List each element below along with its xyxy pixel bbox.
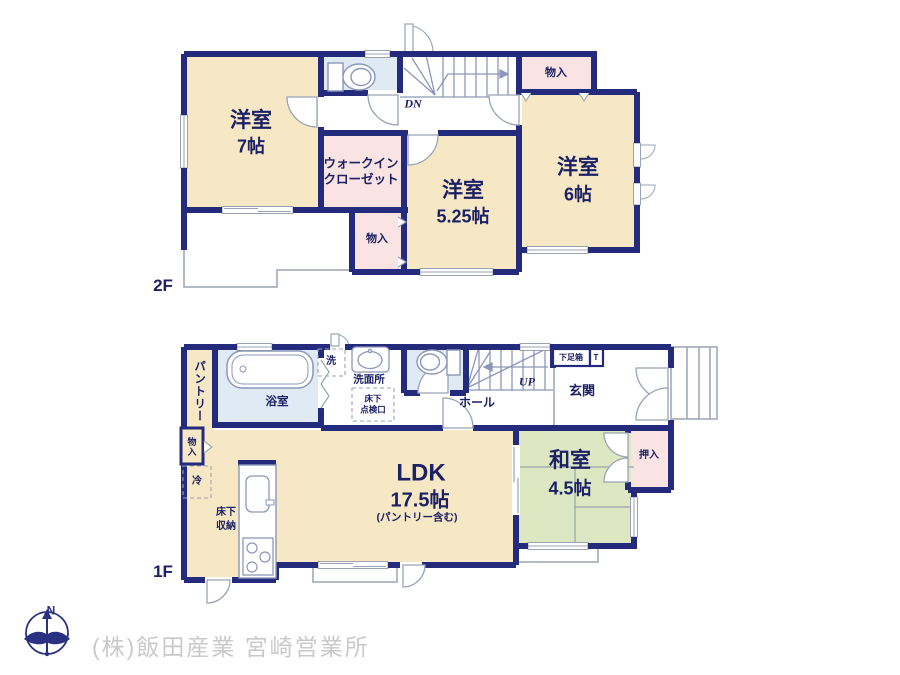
oshiire-label: 押入 xyxy=(639,451,659,462)
closet-left-label: 物入 xyxy=(186,433,195,461)
ldk-name: LDK xyxy=(396,460,445,485)
casement-flag-2 xyxy=(641,185,655,199)
room-west-name: 洋室 xyxy=(230,110,272,132)
toilet-icon-2f xyxy=(328,63,375,91)
closet-top-label: 物入 xyxy=(545,68,567,80)
underfloor-storage-line1: 床下 xyxy=(216,508,236,519)
stairs-2f xyxy=(400,54,517,97)
room-center-size: 5.25帖 xyxy=(436,208,489,227)
stairs-1f-arrow xyxy=(484,363,492,371)
shoe-box-label: 下足箱 xyxy=(559,354,583,362)
ldk-note: (パントリー含む) xyxy=(376,512,457,523)
laundry-label: 洗 xyxy=(326,357,336,368)
casement-flag-1 xyxy=(641,145,655,159)
pantry-label: パントリー xyxy=(193,352,205,430)
porch-steps xyxy=(671,347,717,419)
compass-north-label: N xyxy=(47,605,56,618)
fridge-label: 冷 xyxy=(192,477,202,488)
bathtub-icon xyxy=(227,351,313,388)
stove-icon xyxy=(243,538,273,575)
ldk-size: 17.5帖 xyxy=(391,491,450,512)
vent-window-1f xyxy=(331,334,339,346)
washbasin-icon xyxy=(352,347,389,372)
kitchen-sink-icon xyxy=(246,476,269,512)
bathroom-label: 浴室 xyxy=(266,396,289,408)
washitsu-slider-gap xyxy=(512,445,520,515)
underfloor-storage-line2: 収納 xyxy=(216,522,236,533)
shoe-box-t-label: T xyxy=(594,354,599,362)
terrace-outline xyxy=(313,567,397,582)
closet-mid-label: 物入 xyxy=(366,234,388,246)
inspection-hatch-line2: 点検口 xyxy=(360,406,386,415)
entry-door-lower xyxy=(636,388,668,420)
toilet-2f-door xyxy=(368,95,398,125)
toilet-icon-1f xyxy=(417,350,460,375)
washitsu-size: 4.5帖 xyxy=(548,480,591,499)
floor-plan-page: 2F 洋室 7帖 ウォークイン クローゼット 洋室 5.25帖 洋室 6帖 物入… xyxy=(0,0,900,675)
room-east-size: 6帖 xyxy=(564,186,592,205)
room-center-name: 洋室 xyxy=(442,180,484,202)
ldk-slider-window xyxy=(318,562,388,569)
floor-plan-drawing xyxy=(0,0,900,675)
hall-label: ホール xyxy=(459,397,495,410)
company-name: (株)飯田産業 宮崎営業所 xyxy=(92,628,370,662)
washroom-label: 洗面所 xyxy=(353,374,385,385)
stairs-2f-label: DN xyxy=(404,98,421,111)
kitchen-exterior-door xyxy=(207,580,230,603)
room-east-casement-2 xyxy=(634,183,641,205)
vent-window-2f xyxy=(405,24,413,53)
stairs-1f xyxy=(466,347,553,390)
entrance-label: 玄関 xyxy=(569,384,595,398)
inspection-hatch-line1: 床下 xyxy=(364,395,381,404)
room-west-size: 7帖 xyxy=(237,138,265,157)
walkin-closet-line1: ウォークイン xyxy=(323,157,398,170)
floor1-label: 1F xyxy=(153,563,173,581)
balcony-outline xyxy=(184,250,357,287)
walkin-closet-line2: クローゼット xyxy=(323,173,398,186)
room-east-door xyxy=(489,95,519,125)
room-east-casement-1 xyxy=(634,143,641,167)
washitsu-name: 和室 xyxy=(549,450,591,472)
ldk-exterior-door xyxy=(403,565,425,587)
kitchen-counter-icon xyxy=(239,465,276,578)
room-east-name: 洋室 xyxy=(557,157,599,179)
floor2-label: 2F xyxy=(153,277,173,295)
stairs-1f-label: UP xyxy=(519,376,535,389)
veranda-outline xyxy=(518,548,598,562)
balcony-slider-window xyxy=(222,207,293,214)
kitchen-faucet-icon xyxy=(266,500,274,505)
stairs-2f-arrow xyxy=(500,70,508,78)
